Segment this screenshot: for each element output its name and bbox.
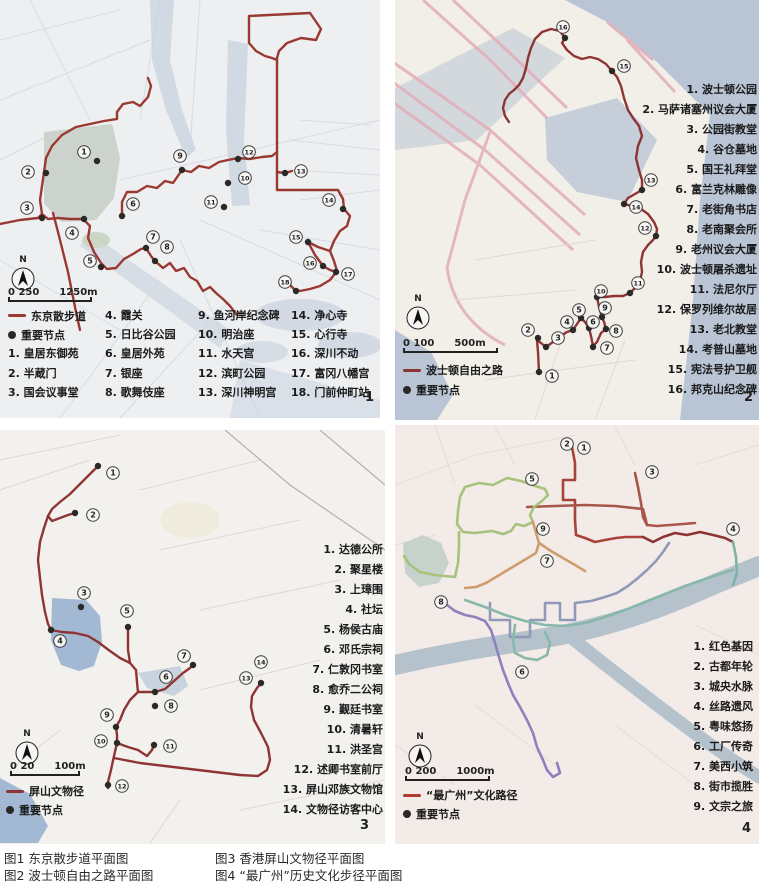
node-number: 4 xyxy=(54,635,67,648)
node-number: 1 xyxy=(578,442,591,455)
svg-text:5: 5 xyxy=(576,306,582,315)
node-number: 4 xyxy=(727,523,740,536)
svg-text:10: 10 xyxy=(96,738,106,746)
node-dot xyxy=(221,204,227,210)
north-label: N xyxy=(12,730,42,739)
node-number: 4 xyxy=(561,316,574,329)
node-dot xyxy=(536,369,542,375)
node-dot xyxy=(320,263,326,269)
node-dot xyxy=(340,206,346,212)
route-line-swatch xyxy=(6,790,24,793)
scale-bar: 0 100500m xyxy=(403,338,498,353)
node-number: 15 xyxy=(618,60,631,73)
legend-item: 14. 净心寺 xyxy=(291,306,369,325)
node-dot xyxy=(152,258,158,264)
svg-text:1: 1 xyxy=(110,469,116,478)
legend-item: 10. 明治座 xyxy=(198,325,280,344)
node-number: 13 xyxy=(240,672,253,685)
node-number: 6 xyxy=(587,316,600,329)
node-number: 11 xyxy=(164,740,177,753)
figure-captions: 图1 东京散步道平面图图2 波士顿自由之路平面图图3 香港屏山文物径平面图图4 … xyxy=(0,845,759,879)
node-dot xyxy=(562,35,568,41)
route-key-label: 东京散步道 xyxy=(31,308,86,324)
route-key: 波士顿自由之路 xyxy=(403,362,503,378)
node-number: 9 xyxy=(101,709,114,722)
svg-text:2: 2 xyxy=(90,511,96,520)
legend-items: 1. 红色基因2. 古都年轮3. 城央水脉4. 丝路遗风5. 粤味悠扬6. 工厂… xyxy=(693,637,753,817)
node-dot xyxy=(143,245,149,251)
legend-item: 15. 心行寺 xyxy=(291,325,369,344)
node-dot xyxy=(535,335,541,341)
legend-column: 9. 鱼河岸纪念碑10. 明治座11. 水天宫12. 滨町公园13. 深川神明宫 xyxy=(198,306,280,402)
panel-guangzhou: 123456789 1. 红色基因2. 古都年轮3. 城央水脉4. 丝路遗风5.… xyxy=(395,425,759,844)
svg-text:7: 7 xyxy=(181,652,187,661)
legend-item: 4. 谷仓墓地 xyxy=(642,140,757,160)
node-key-label: 重要节点 xyxy=(416,806,460,822)
svg-text:17: 17 xyxy=(343,271,352,279)
park xyxy=(82,232,110,248)
node-key-label: 重要节点 xyxy=(19,802,63,818)
legend-items: 1. 皇居东御苑2. 半蔵门3. 国会议事堂 xyxy=(8,344,86,402)
svg-text:14: 14 xyxy=(324,197,334,205)
legend-item: 16. 邦克山纪念碑 xyxy=(642,380,757,400)
svg-text:4: 4 xyxy=(730,525,736,534)
node-number: 12 xyxy=(243,146,256,159)
node-dot-swatch xyxy=(403,810,411,818)
legend-item: 6. 工厂传奇 xyxy=(693,737,753,757)
scale-bar: 0 2001000m xyxy=(405,766,495,781)
scale-right: 100m xyxy=(54,761,85,772)
svg-text:10: 10 xyxy=(596,288,606,296)
caption-fig4: 图4 “最广州”历史文化步径平面图 xyxy=(215,865,402,884)
node-number: 8 xyxy=(161,241,174,254)
node-number: 7 xyxy=(147,231,160,244)
scale-bar: 0 20100m xyxy=(10,761,86,776)
scale-left: 0 250 xyxy=(8,287,39,298)
legend-item: 3. 城央水脉 xyxy=(693,677,753,697)
legend-item: 13. 屏山邓族文物馆 xyxy=(283,780,383,800)
node-number: 5 xyxy=(84,255,97,268)
legend-item: 6. 邓氏宗祠 xyxy=(283,640,383,660)
panel-boston: 12345678910111213141516 1. 波士顿公园2. 马萨诸塞州… xyxy=(395,0,759,420)
node-dot xyxy=(48,627,54,633)
svg-text:4: 4 xyxy=(69,229,75,238)
node-number: 5 xyxy=(121,605,134,618)
node-number: 3 xyxy=(21,202,34,215)
svg-text:1: 1 xyxy=(549,372,555,381)
guangzhou-legend: 1. 红色基因2. 古都年轮3. 城央水脉4. 丝路遗风5. 粤味悠扬6. 工厂… xyxy=(693,637,753,817)
node-number: 3 xyxy=(552,332,565,345)
legend-column: 14. 净心寺15. 心行寺16. 深川不动17. 富冈八幡宫18. 门前仲町站 xyxy=(291,306,369,402)
legend-item: 14. 考普山墓地 xyxy=(642,340,757,360)
svg-text:5: 5 xyxy=(87,257,93,266)
node-dot xyxy=(81,216,87,222)
node-dot-swatch xyxy=(403,386,411,394)
legend-item: 18. 门前仲町站 xyxy=(291,383,369,402)
node-number: 4 xyxy=(66,227,79,240)
legend-item: 2. 聚星楼 xyxy=(283,560,383,580)
svg-text:5: 5 xyxy=(124,607,130,616)
legend-items: 9. 鱼河岸纪念碑10. 明治座11. 水天宫12. 滨町公园13. 深川神明宫 xyxy=(198,306,280,402)
scale-left: 0 20 xyxy=(10,761,34,772)
svg-text:15: 15 xyxy=(291,234,301,242)
legend-item: 9. 老州议会大厦 xyxy=(642,240,757,260)
node-number: 6 xyxy=(127,198,140,211)
legend-item: 9. 文宗之旅 xyxy=(693,797,753,817)
svg-text:2: 2 xyxy=(564,440,570,449)
legend-item: 3. 上璋围 xyxy=(283,580,383,600)
svg-text:3: 3 xyxy=(555,334,561,343)
svg-text:9: 9 xyxy=(602,304,608,313)
svg-text:16: 16 xyxy=(305,260,315,268)
legend-item: 11. 水天宫 xyxy=(198,344,280,363)
node-key: 重要节点 xyxy=(8,325,86,344)
north-label: N xyxy=(405,733,435,742)
node-number: 11 xyxy=(205,196,218,209)
scale-left: 0 100 xyxy=(403,338,434,349)
node-number: 9 xyxy=(174,150,187,163)
node-number: 14 xyxy=(630,201,643,214)
north-label: N xyxy=(8,256,38,265)
node-number: 9 xyxy=(599,302,612,315)
node-number: 10 xyxy=(595,285,608,298)
legend-item: 5. 国王礼拜堂 xyxy=(642,160,757,180)
legend-item: 11. 法尼尔厅 xyxy=(642,280,757,300)
legend-items: 1. 达德公所2. 聚星楼3. 上璋围4. 社坛5. 杨侯古庙6. 邓氏宗祠7.… xyxy=(283,540,383,820)
node-dot xyxy=(570,327,576,333)
node-dot xyxy=(151,742,157,748)
route-line-swatch xyxy=(8,314,26,317)
legend-item: 6. 富兰克林雕像 xyxy=(642,180,757,200)
route-key-label: 屏山文物径 xyxy=(29,783,84,799)
legend-item: 8. 歌舞伎座 xyxy=(105,383,176,402)
node-number: 7 xyxy=(178,650,191,663)
node-dot xyxy=(603,326,609,332)
legend-item: 2. 半蔵门 xyxy=(8,364,86,383)
node-number: 5 xyxy=(526,473,539,486)
svg-text:9: 9 xyxy=(540,525,546,534)
node-number: 10 xyxy=(95,735,108,748)
caption-fig2: 图2 波士顿自由之路平面图 xyxy=(4,865,153,884)
node-dot xyxy=(95,463,101,469)
node-dot xyxy=(78,604,84,610)
legend-item: 16. 深川不动 xyxy=(291,344,369,363)
node-dot xyxy=(190,662,196,668)
node-dot xyxy=(590,344,596,350)
legend-item: 9. 鱼河岸纪念碑 xyxy=(198,306,280,325)
panel-hongkong: 1234567891011121314 1. 达德公所2. 聚星楼3. 上璋围4… xyxy=(0,430,385,844)
svg-text:15: 15 xyxy=(619,63,629,71)
scale-left: 0 200 xyxy=(405,766,436,777)
svg-text:8: 8 xyxy=(168,702,174,711)
node-number: 3 xyxy=(646,466,659,479)
svg-text:4: 4 xyxy=(57,637,63,646)
node-number: 2 xyxy=(87,509,100,522)
route-key-label: “最广州”文化路径 xyxy=(426,787,517,803)
svg-text:7: 7 xyxy=(150,233,156,242)
legend-item: 4. 霞关 xyxy=(105,306,176,325)
svg-text:9: 9 xyxy=(177,152,183,161)
node-key: 重要节点 xyxy=(6,802,63,818)
route-key-label: 波士顿自由之路 xyxy=(426,362,503,378)
node-dot xyxy=(621,201,627,207)
node-dot xyxy=(39,215,45,221)
node-dot xyxy=(627,290,633,296)
svg-text:6: 6 xyxy=(519,668,525,677)
legend-item: 8. 愈乔二公祠 xyxy=(283,680,383,700)
legend-item: 13. 深川神明宫 xyxy=(198,383,280,402)
node-number: 18 xyxy=(279,276,292,289)
legend-item: 5. 粤味悠扬 xyxy=(693,717,753,737)
node-number: 14 xyxy=(323,194,336,207)
node-dot xyxy=(119,213,125,219)
svg-text:5: 5 xyxy=(529,475,535,484)
legend-item: 11. 洪圣宫 xyxy=(283,740,383,760)
legend-item: 1. 皇居东御苑 xyxy=(8,344,86,363)
legend-item: 6. 皇居外苑 xyxy=(105,344,176,363)
svg-text:3: 3 xyxy=(81,589,87,598)
node-number: 2 xyxy=(561,438,574,451)
node-number: 12 xyxy=(116,780,129,793)
svg-text:8: 8 xyxy=(438,598,444,607)
svg-text:12: 12 xyxy=(117,783,126,791)
svg-text:14: 14 xyxy=(256,659,266,667)
node-dot xyxy=(258,680,264,686)
node-number: 8 xyxy=(435,596,448,609)
svg-text:4: 4 xyxy=(564,318,570,327)
legend-item: 9. 觐廷书室 xyxy=(283,700,383,720)
svg-text:3: 3 xyxy=(24,204,30,213)
node-number: 9 xyxy=(537,523,550,536)
svg-text:2: 2 xyxy=(525,326,531,335)
route-line-swatch xyxy=(403,369,421,372)
node-dot xyxy=(179,167,185,173)
node-dot xyxy=(305,239,311,245)
legend-item: 10. 清暑轩 xyxy=(283,720,383,740)
node-number: 14 xyxy=(255,656,268,669)
svg-text:8: 8 xyxy=(164,243,170,252)
node-number: 1 xyxy=(546,370,559,383)
route-key: “最广州”文化路径 xyxy=(403,787,517,803)
node-dot xyxy=(609,68,615,74)
node-number: 5 xyxy=(573,304,586,317)
panel-tokyo: 123456789101112131415161718 N 0 2501250m… xyxy=(0,0,380,418)
legend-items: 1. 波士顿公园2. 马萨诸塞州议会大厦3. 公园街教堂4. 谷仓墓地5. 国王… xyxy=(642,80,757,400)
node-dot xyxy=(43,170,49,176)
panel-number: 4 xyxy=(742,821,751,836)
svg-text:1: 1 xyxy=(81,148,87,157)
legend-item: 5. 杨侯古庙 xyxy=(283,620,383,640)
legend-item: 4. 丝路遗风 xyxy=(693,697,753,717)
legend-item: 12. 保罗列维尔故居 xyxy=(642,300,757,320)
node-dot xyxy=(543,344,549,350)
legend-items: 4. 霞关5. 日比谷公园6. 皇居外苑7. 银座8. 歌舞伎座 xyxy=(105,306,176,402)
node-dot xyxy=(152,703,158,709)
node-number: 2 xyxy=(522,324,535,337)
legend-item: 13. 老北教堂 xyxy=(642,320,757,340)
route-key: 东京散步道 xyxy=(8,306,86,325)
node-dot xyxy=(599,314,605,320)
node-dot xyxy=(98,264,104,270)
svg-text:13: 13 xyxy=(241,675,250,683)
scale-right: 500m xyxy=(454,338,485,349)
svg-text:16: 16 xyxy=(558,24,568,32)
legend-item: 4. 社坛 xyxy=(283,600,383,620)
legend-item: 7. 仁敦冈书室 xyxy=(283,660,383,680)
node-key: 重要节点 xyxy=(403,806,460,822)
node-dot xyxy=(113,724,119,730)
node-number: 10 xyxy=(239,172,252,185)
node-dot xyxy=(114,740,120,746)
svg-text:14: 14 xyxy=(631,204,641,212)
node-number: 16 xyxy=(304,257,317,270)
svg-text:11: 11 xyxy=(206,199,216,207)
legend-item: 15. 宪法号护卫舰 xyxy=(642,360,757,380)
legend-item: 14. 文物径访客中心 xyxy=(283,800,383,820)
legend-item: 7. 银座 xyxy=(105,364,176,383)
node-dot xyxy=(293,288,299,294)
legend-item: 2. 马萨诸塞州议会大厦 xyxy=(642,100,757,120)
legend-item: 7. 老街角书店 xyxy=(642,200,757,220)
node-number: 15 xyxy=(290,231,303,244)
node-number: 6 xyxy=(516,666,529,679)
legend-column: 东京散步道 重要节点 1. 皇居东御苑2. 半蔵门3. 国会议事堂 xyxy=(8,306,86,402)
svg-text:10: 10 xyxy=(240,175,250,183)
node-dot xyxy=(235,156,241,162)
svg-text:13: 13 xyxy=(296,168,305,176)
legend-item: 12. 述卿书室前厅 xyxy=(283,760,383,780)
panel-number: 2 xyxy=(744,390,753,405)
svg-text:12: 12 xyxy=(244,149,253,157)
node-number: 8 xyxy=(610,325,623,338)
node-dot-swatch xyxy=(8,331,16,339)
legend-item: 1. 波士顿公园 xyxy=(642,80,757,100)
legend-item: 10. 波士顿屠杀遗址 xyxy=(642,260,757,280)
svg-text:6: 6 xyxy=(590,318,596,327)
boston-legend: 1. 波士顿公园2. 马萨诸塞州议会大厦3. 公园街教堂4. 谷仓墓地5. 国王… xyxy=(642,80,757,400)
legend-column: 4. 霞关5. 日比谷公园6. 皇居外苑7. 银座8. 歌舞伎座 xyxy=(105,306,176,402)
node-number: 8 xyxy=(165,700,178,713)
panel-number: 1 xyxy=(365,390,374,405)
node-dot xyxy=(333,269,339,275)
legend-item: 1. 红色基因 xyxy=(693,637,753,657)
north-label: N xyxy=(403,295,433,304)
node-number: 6 xyxy=(160,671,173,684)
legend-items: 14. 净心寺15. 心行寺16. 深川不动17. 富冈八幡宫18. 门前仲町站 xyxy=(291,306,369,402)
node-number: 2 xyxy=(22,166,35,179)
node-dot xyxy=(125,624,131,630)
north-arrow-icon: N xyxy=(403,295,433,335)
terrain-patch xyxy=(160,502,220,538)
svg-text:3: 3 xyxy=(649,468,655,477)
node-key-label: 重要节点 xyxy=(416,382,460,398)
svg-text:9: 9 xyxy=(104,711,110,720)
svg-text:7: 7 xyxy=(544,557,550,566)
node-key: 重要节点 xyxy=(403,382,460,398)
node-number: 7 xyxy=(541,555,554,568)
scale-bar: 0 2501250m xyxy=(8,287,98,302)
node-dot xyxy=(282,170,288,176)
legend-item: 7. 美西小筑 xyxy=(693,757,753,777)
legend-item: 17. 富冈八幡宫 xyxy=(291,364,369,383)
node-number: 13 xyxy=(295,165,308,178)
hongkong-legend: 1. 达德公所2. 聚星楼3. 上璋围4. 社坛5. 杨侯古庙6. 邓氏宗祠7.… xyxy=(283,540,383,820)
legend-item: 8. 老南聚会所 xyxy=(642,220,757,240)
node-dot xyxy=(105,782,111,788)
legend-item: 12. 滨町公园 xyxy=(198,364,280,383)
node-number: 7 xyxy=(601,342,614,355)
node-number: 16 xyxy=(557,21,570,34)
legend-item: 1. 达德公所 xyxy=(283,540,383,560)
svg-text:18: 18 xyxy=(280,279,290,287)
svg-text:7: 7 xyxy=(604,344,610,353)
node-number: 1 xyxy=(107,467,120,480)
svg-text:8: 8 xyxy=(613,327,619,336)
node-dot xyxy=(152,689,158,695)
route-key: 屏山文物径 xyxy=(6,783,84,799)
legend-item: 3. 国会议事堂 xyxy=(8,383,86,402)
legend-item: 5. 日比谷公园 xyxy=(105,325,176,344)
legend-item: 8. 街市揽胜 xyxy=(693,777,753,797)
legend-item: 3. 公园街教堂 xyxy=(642,120,757,140)
node-dot xyxy=(94,158,100,164)
svg-text:1: 1 xyxy=(581,444,587,453)
node-number: 17 xyxy=(342,268,355,281)
route-line-swatch xyxy=(403,794,421,797)
node-dot-swatch xyxy=(6,806,14,814)
node-dot xyxy=(72,510,78,516)
panel-number: 3 xyxy=(360,818,369,833)
svg-text:2: 2 xyxy=(25,168,31,177)
node-number: 1 xyxy=(78,146,91,159)
node-dot xyxy=(225,180,231,186)
svg-text:6: 6 xyxy=(130,200,136,209)
node-number: 3 xyxy=(78,587,91,600)
legend-item: 2. 古都年轮 xyxy=(693,657,753,677)
svg-text:11: 11 xyxy=(165,743,175,751)
svg-text:6: 6 xyxy=(163,673,169,682)
node-key-label: 重要节点 xyxy=(21,327,65,343)
